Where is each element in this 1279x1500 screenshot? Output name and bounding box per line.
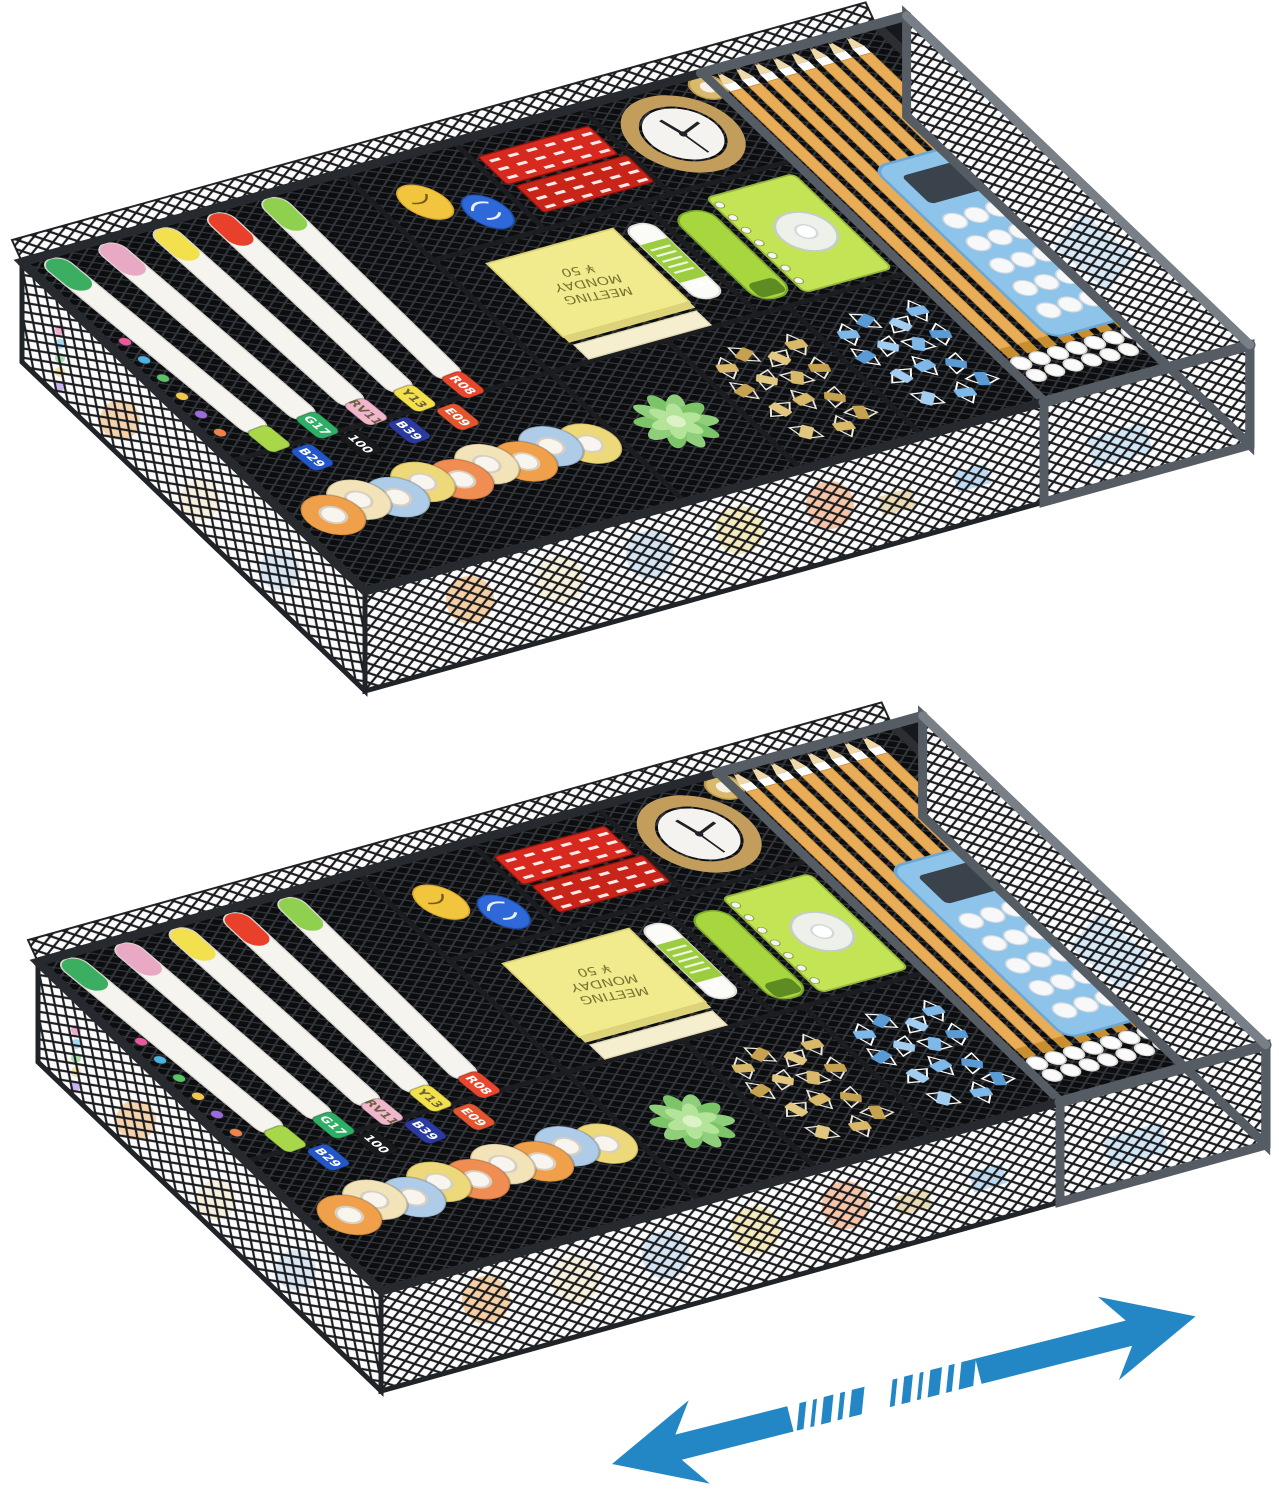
marker-tip-band — [131, 952, 148, 967]
marker-tip-band — [239, 922, 255, 937]
binder-clip-body — [928, 330, 953, 339]
binder-clip-body — [790, 370, 804, 385]
marker-tip-band — [76, 967, 93, 982]
marker-tip-band — [185, 937, 201, 952]
marker-tip-band — [277, 207, 292, 222]
arrow-hatch-bar — [890, 1378, 898, 1407]
marker-tip-band — [293, 907, 308, 922]
binder-clip-body — [927, 1036, 941, 1051]
binder-clip-body — [807, 364, 832, 373]
arrow-hatch-bar — [837, 1392, 845, 1421]
expand-arrow — [601, 1275, 1206, 1500]
arrow-hatch-bar — [928, 1367, 942, 1397]
arrow-hatch-bar — [917, 1372, 924, 1401]
marker-tip-band — [60, 267, 77, 282]
marker-tip-band — [169, 237, 185, 252]
product-photo: G17B29RV11100Y13B39R08E09MEETINGMONDAY¥ … — [0, 0, 1279, 1500]
arrow-body-solid — [975, 1320, 1135, 1384]
binder-clip-body — [944, 1030, 969, 1039]
organizer-bottom: G17B29RV11100Y13B39R08E09MEETINGMONDAY¥ … — [28, 702, 1266, 1391]
marker-tip-band — [115, 252, 132, 267]
arrow-hatch-bar — [959, 1358, 976, 1389]
arrow-hatch-bar — [849, 1387, 864, 1418]
arrow-hatch-bar — [821, 1395, 833, 1425]
arrow-hatch-bar — [946, 1364, 955, 1393]
binder-clip-body — [806, 1070, 820, 1085]
organizer-top: G17B29RV11100Y13B39R08E09MEETINGMONDAY¥ … — [12, 2, 1250, 691]
binder-clip-body — [911, 336, 925, 351]
arrow-hatch-bar — [810, 1399, 817, 1428]
arrow-body-solid — [673, 1406, 794, 1460]
marker-tip-band — [223, 222, 239, 237]
scene-svg: G17B29RV11100Y13B39R08E09MEETINGMONDAY¥ … — [0, 0, 1279, 1500]
expand-arrow-shape — [601, 1275, 1206, 1500]
arrow-hatch-bar — [901, 1374, 913, 1404]
binder-clip-body — [823, 1064, 848, 1073]
arrow-hatch-bar — [797, 1401, 807, 1430]
